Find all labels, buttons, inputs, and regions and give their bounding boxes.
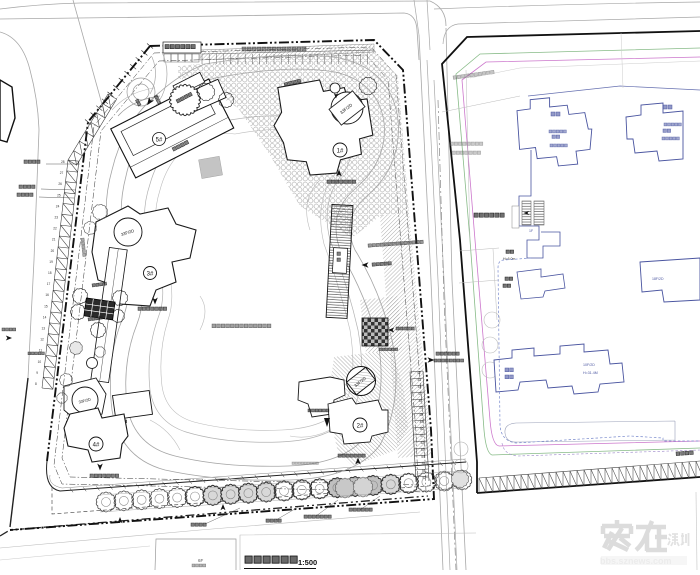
svg-text:43: 43 (417, 378, 421, 382)
svg-text:13: 13 (42, 327, 46, 331)
svg-text:1#: 1# (337, 149, 344, 155)
svg-text:46: 46 (419, 399, 423, 403)
svg-text:53: 53 (421, 448, 425, 452)
svg-text:6F: 6F (198, 558, 204, 563)
svg-text:54: 54 (421, 455, 425, 459)
svg-text:55: 55 (422, 462, 426, 466)
svg-text:27: 27 (60, 171, 64, 175)
svg-text:5#: 5# (156, 138, 163, 144)
svg-text:8: 8 (35, 382, 37, 386)
svg-text:28: 28 (61, 160, 65, 164)
svg-text:51: 51 (420, 434, 424, 438)
svg-text:H=6.0m: H=6.0m (503, 257, 515, 261)
svg-text:15: 15 (44, 304, 48, 308)
svg-text:23: 23 (55, 216, 59, 220)
svg-text:45: 45 (418, 392, 422, 396)
svg-text:10: 10 (38, 360, 42, 364)
svg-text:18: 18 (48, 271, 52, 275)
svg-text:3#: 3# (147, 272, 154, 278)
svg-text:4#: 4# (93, 443, 100, 449)
svg-text:22: 22 (53, 227, 57, 231)
svg-text:47: 47 (419, 406, 423, 410)
svg-text:25: 25 (57, 193, 61, 197)
svg-text:44: 44 (418, 385, 422, 389)
svg-text:24: 24 (56, 204, 60, 208)
svg-text:49: 49 (420, 420, 424, 424)
svg-text:19: 19 (49, 260, 53, 264)
svg-text:9: 9 (36, 371, 38, 375)
svg-text:10F/2D: 10F/2D (583, 363, 595, 367)
svg-text:20: 20 (51, 249, 55, 253)
svg-text:1F: 1F (529, 229, 533, 233)
svg-text:26: 26 (58, 182, 62, 186)
svg-text:21: 21 (52, 238, 56, 242)
svg-text:18F/2D: 18F/2D (652, 277, 664, 281)
svg-text:48: 48 (419, 413, 423, 417)
svg-text:50: 50 (420, 427, 424, 431)
svg-text:17: 17 (47, 282, 51, 286)
svg-text:14: 14 (43, 315, 47, 319)
svg-text:52: 52 (421, 441, 425, 445)
svg-text:12: 12 (40, 338, 44, 342)
svg-text:16: 16 (45, 293, 49, 297)
svg-text:2#: 2# (357, 424, 364, 430)
svg-text:H=31.4M: H=31.4M (583, 371, 598, 375)
svg-text:42: 42 (417, 371, 421, 375)
svg-text:1:500: 1:500 (298, 558, 317, 567)
